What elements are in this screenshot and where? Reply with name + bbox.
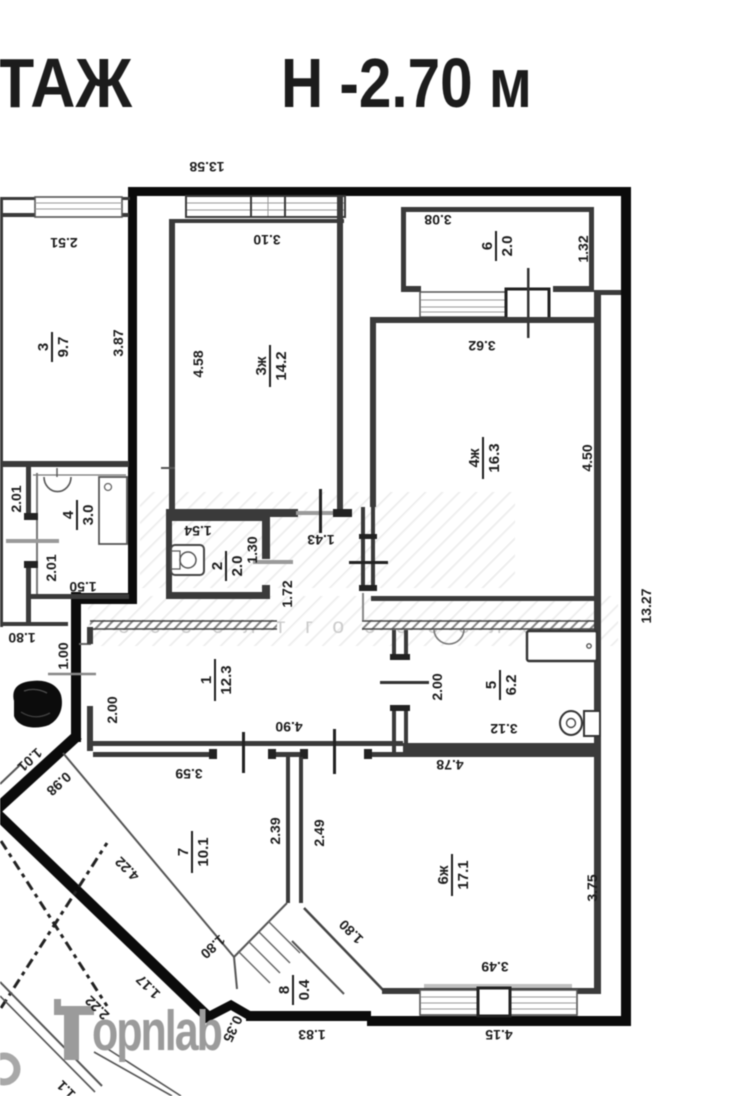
svg-text:4: 4 [60,510,77,519]
svg-text:3.10: 3.10 [253,232,280,248]
svg-text:7: 7 [175,848,192,856]
svg-text:1.50: 1.50 [69,579,96,595]
svg-text:4.58: 4.58 [190,350,206,377]
svg-text:1.54: 1.54 [184,523,211,539]
svg-text:3.49: 3.49 [481,959,508,975]
svg-text:2.39: 2.39 [267,817,283,844]
svg-text:4.90: 4.90 [275,719,302,735]
svg-text:1.83: 1.83 [298,1027,325,1043]
svg-text:6ж: 6ж [435,865,452,884]
svg-text:13.58: 13.58 [189,159,224,175]
svg-text:5: 5 [483,681,500,689]
svg-text:2.49: 2.49 [311,819,327,846]
svg-text:12.3: 12.3 [218,665,235,694]
svg-text:opnlab: opnlab [92,998,221,1062]
svg-text:1.30: 1.30 [244,536,260,563]
svg-text:2.0: 2.0 [499,236,516,257]
svg-text:Н -2.70 м: Н -2.70 м [281,44,532,122]
svg-text:1: 1 [198,676,215,684]
svg-text:2.00: 2.00 [104,696,120,723]
svg-text:1.32: 1.32 [575,235,591,262]
svg-text:3: 3 [35,343,52,351]
svg-text:3.59: 3.59 [175,766,202,782]
svg-text:4.50: 4.50 [579,444,595,471]
svg-text:17.1: 17.1 [455,860,472,889]
svg-text:14.2: 14.2 [273,351,290,380]
svg-text:2.01: 2.01 [8,485,24,512]
svg-text:3ж: 3ж [253,356,270,375]
svg-text:16.3: 16.3 [486,443,503,472]
svg-text:3.12: 3.12 [490,721,517,737]
svg-text:2.51: 2.51 [50,235,77,251]
svg-text:3.08: 3.08 [424,212,451,228]
svg-text:6: 6 [479,242,496,250]
svg-text:13.27: 13.27 [638,588,654,623]
svg-text:9.7: 9.7 [55,337,72,358]
svg-text:1.43: 1.43 [307,532,334,548]
svg-text:0.4: 0.4 [296,979,313,1001]
svg-text:1.80: 1.80 [8,630,35,646]
svg-text:1.00: 1.00 [55,642,71,669]
svg-text:1.72: 1.72 [279,580,295,607]
svg-text:2.01: 2.01 [43,554,59,581]
svg-text:4.78: 4.78 [436,757,463,773]
svg-text:3.62: 3.62 [468,338,495,354]
svg-text:8: 8 [276,986,293,994]
svg-text:6.2: 6.2 [503,675,520,696]
svg-text:2.0: 2.0 [229,556,246,577]
svg-text:10.1: 10.1 [195,837,212,866]
svg-text:4.15: 4.15 [485,1027,512,1043]
svg-text:4ж: 4ж [466,448,483,467]
svg-text:2: 2 [209,562,226,570]
svg-text:2.00: 2.00 [429,673,445,700]
svg-text:3.0: 3.0 [80,505,97,526]
svg-text:3.87: 3.87 [110,329,126,356]
svg-text:ТАЖ: ТАЖ [0,44,133,122]
svg-text:3.75: 3.75 [584,874,600,901]
